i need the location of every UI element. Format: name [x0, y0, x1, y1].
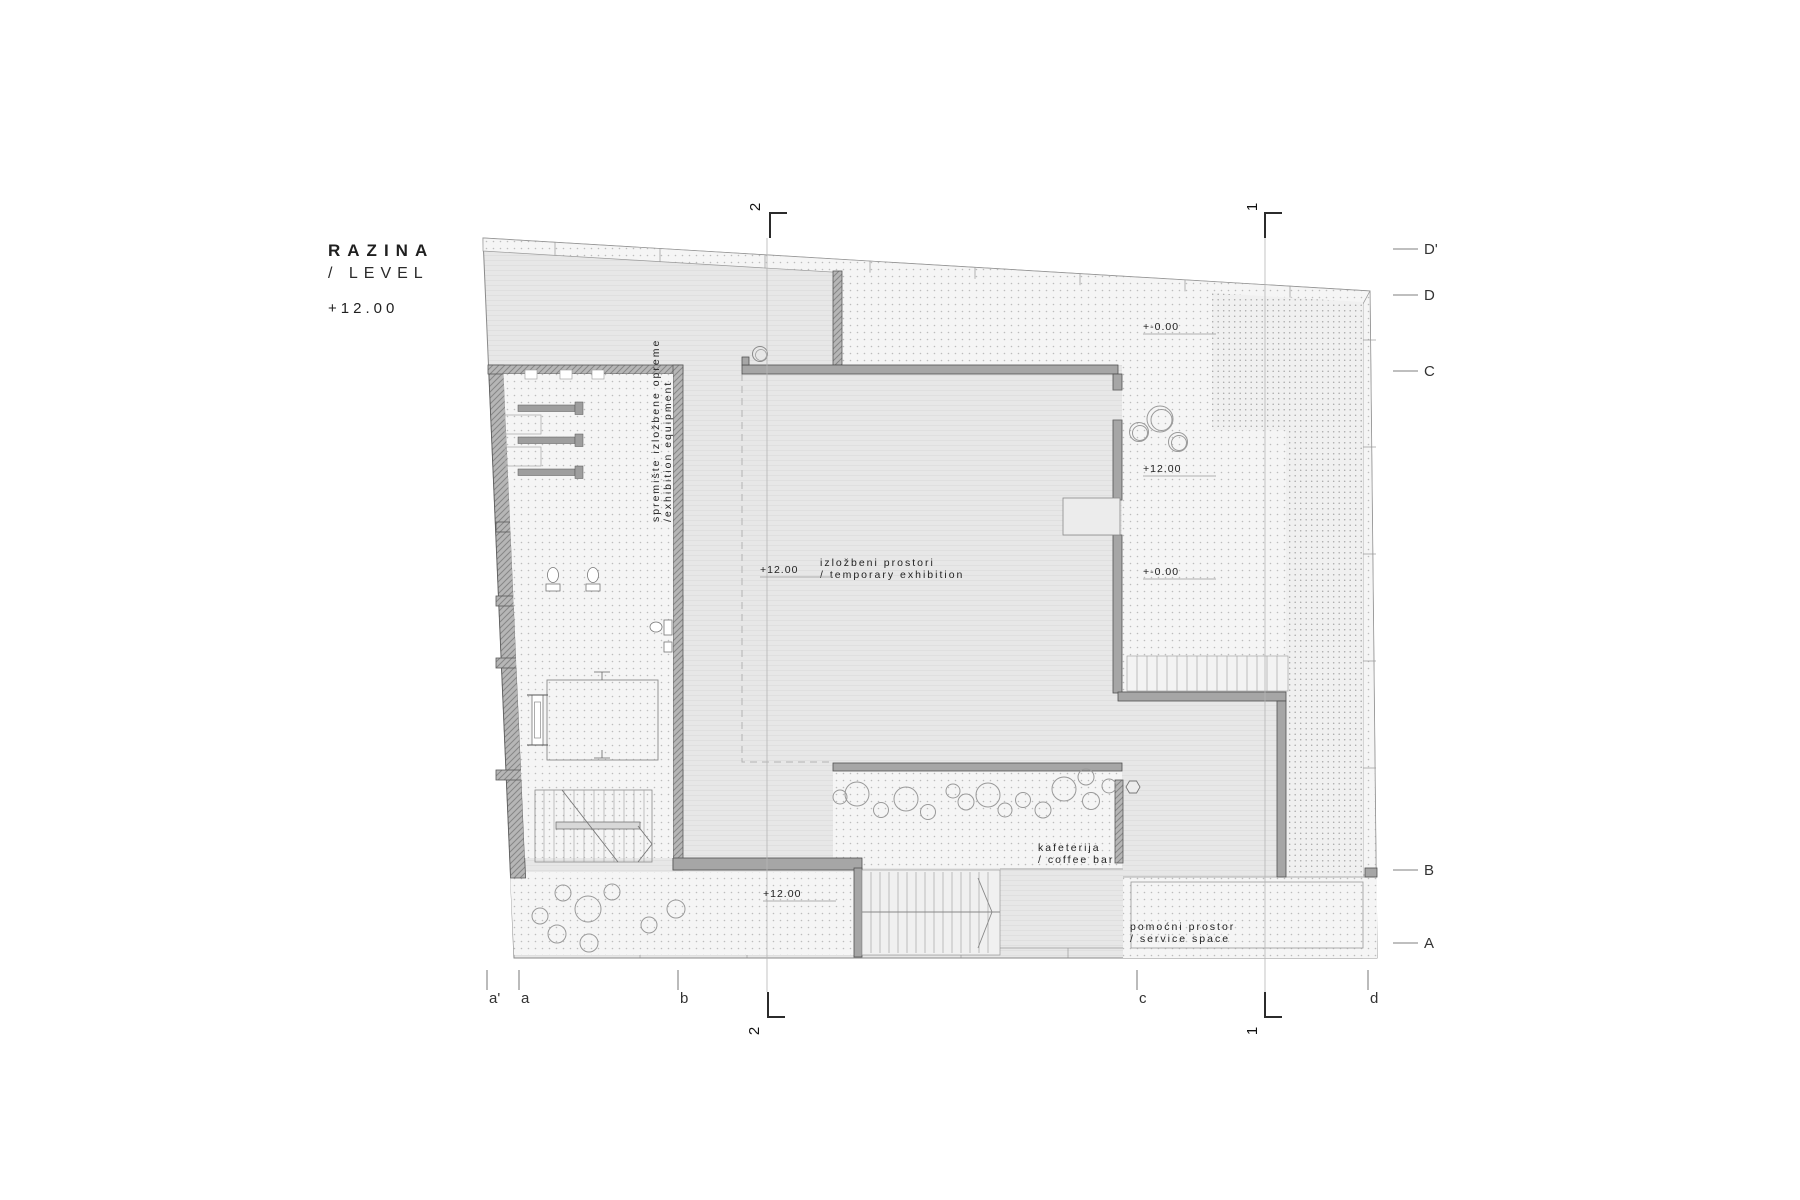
terrace-south-wall — [1118, 692, 1286, 701]
core-east-wall — [673, 365, 683, 870]
grid-label-c: c — [1139, 990, 1147, 1007]
cafe-label-line1: kafeterija — [1038, 842, 1101, 854]
hall-east-wall-a — [1113, 374, 1122, 390]
cafe-north-wall — [833, 763, 1122, 771]
grid-label-d-cap: D — [1424, 287, 1435, 304]
section-1-bottom-label: 1 — [1244, 1027, 1261, 1035]
level-upper-terrace: +-0.00 — [1143, 321, 1179, 333]
south-stair-side-wall — [854, 868, 862, 957]
grid-label-d: d — [1370, 990, 1378, 1007]
hall-north-wall-step — [742, 357, 749, 365]
sheet-level: +12.00 — [328, 300, 398, 317]
sheet-title: RAZINA — [328, 241, 434, 260]
east-parapet-band — [1363, 291, 1377, 958]
grid-label-a: a — [521, 990, 530, 1007]
exhibition-label-line2: / temporary exhibition — [820, 569, 964, 581]
elevator-door-symbol — [532, 695, 543, 745]
hall-south-wall — [673, 858, 862, 870]
section-2-bottom-label: 2 — [746, 1027, 763, 1035]
section-1-top-marker — [1265, 213, 1282, 238]
service-core-rooms — [504, 370, 674, 862]
level-hall: +12.00 — [760, 564, 798, 576]
storage-label-line2: /exhibition equipment — [662, 381, 674, 522]
grid-label-b: b — [680, 990, 688, 1007]
east-terrace-stair — [1127, 656, 1288, 691]
grid-label-c-cap: C — [1424, 363, 1435, 380]
toilet-bowl-2 — [588, 568, 599, 583]
cafe-label-line2: / coffee bar — [1038, 854, 1114, 866]
elevator-shaft — [547, 680, 658, 760]
section-2-top-marker — [770, 213, 787, 238]
terrace-east-return-wall — [1277, 701, 1286, 877]
stair-landing — [556, 822, 640, 829]
east-terrace-dense-paving — [1286, 430, 1363, 877]
level-south-terrace: +12.00 — [763, 888, 801, 900]
section-1-top-label: 1 — [1244, 203, 1261, 211]
exhibition-label-line1: izložbeni prostori — [820, 557, 935, 569]
toilet-tank-3 — [664, 620, 672, 635]
section-2-bottom-marker — [768, 992, 785, 1017]
elevator — [527, 672, 658, 760]
floor-plan-sheet: 2 2 1 1 D' D C B A a' a b c d RAZINA / L… — [0, 0, 1800, 1200]
sink — [664, 642, 672, 652]
hall-wall-niche — [1063, 498, 1120, 535]
service-space-floor — [1123, 877, 1377, 958]
hall-column — [753, 347, 768, 362]
grid-label-a-prime: a' — [489, 990, 500, 1007]
level-right-terrace: +12.00 — [1143, 463, 1181, 475]
cafe-east-wall — [1115, 780, 1123, 863]
east-edge-wall-stub — [1365, 868, 1377, 877]
grid-label-a-cap: A — [1424, 935, 1434, 952]
storage-label-line1: spremište izložbene opreme — [650, 339, 662, 522]
toilet-tank-2 — [586, 584, 600, 591]
service-label-line1: pomoćni prostor — [1130, 921, 1235, 933]
section-1-bottom-marker — [1265, 992, 1282, 1017]
south-stair — [862, 870, 1000, 955]
hall-east-wall-c — [1113, 535, 1122, 693]
toilet-bowl-3 — [650, 622, 662, 632]
grid-label-d-prime: D' — [1424, 241, 1438, 258]
level-lower-right: +-0.00 — [1143, 566, 1179, 578]
south-terrace — [510, 872, 854, 955]
hall-terrace-wall — [833, 271, 842, 365]
toilet-bowl-1 — [548, 568, 559, 583]
upper-terrace-dense-paving — [1212, 293, 1363, 430]
sheet-subtitle: / LEVEL — [328, 265, 429, 282]
service-label-line2: / service space — [1130, 933, 1230, 945]
grid-label-b-cap: B — [1424, 862, 1434, 879]
hall-east-wall-b — [1113, 420, 1122, 500]
toilet-tank-1 — [546, 584, 560, 591]
section-2-top-label: 2 — [747, 203, 764, 211]
floor-plan-drawing: 2 2 1 1 D' D C B A a' a b c d RAZINA / L… — [0, 0, 1800, 1200]
terrace-column — [1126, 781, 1140, 793]
hall-north-wall — [742, 365, 1118, 374]
